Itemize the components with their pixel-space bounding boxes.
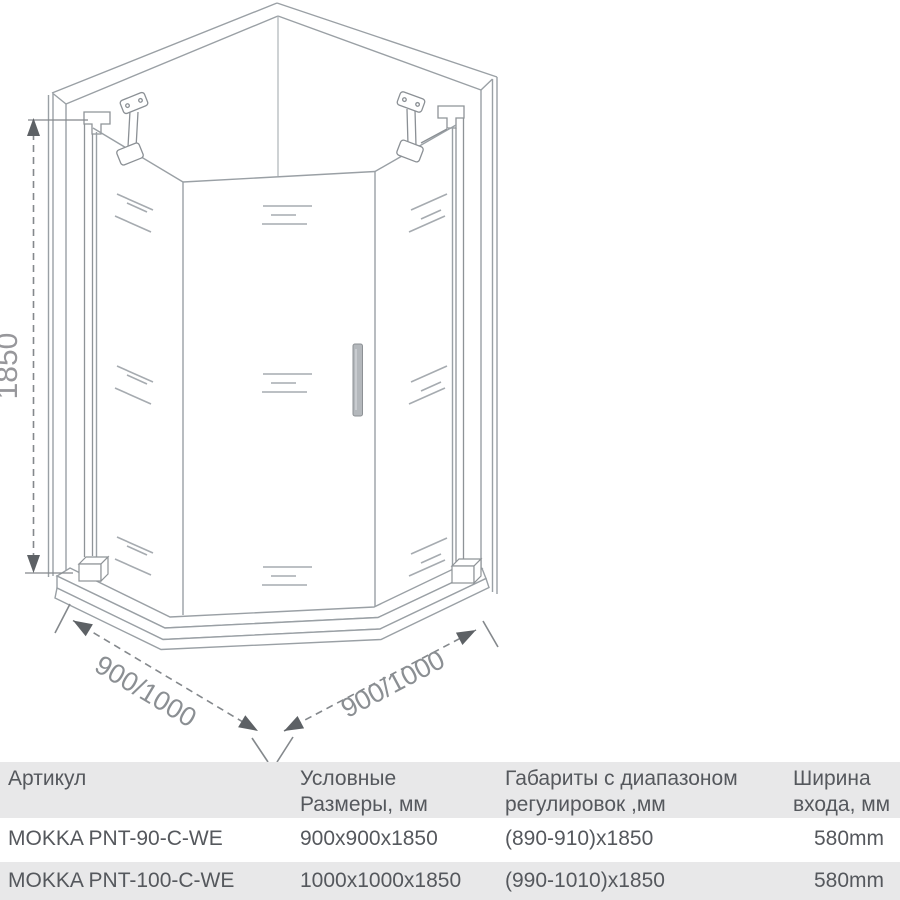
header-entry-width-line2: входа, мм: [793, 792, 890, 818]
glass-panels: [93, 125, 456, 615]
width-left-arrow-inner: [238, 715, 261, 737]
left-wall-top-outer-edge: [52, 3, 277, 93]
left-wall-end-cap: [53, 94, 66, 105]
height-dimension: 1850: [0, 118, 88, 573]
height-dimension-label: 1850: [0, 333, 24, 400]
left-profile-foot: [79, 557, 108, 581]
row2-nominal-size: 1000x1000x1850: [300, 862, 461, 900]
row1-adjust-range: (890-910)x1850: [505, 818, 653, 860]
width-left-tick-inner: [252, 738, 268, 762]
width-left-tick-outer: [55, 604, 70, 633]
header-nominal-size-line1: Условные: [300, 766, 428, 792]
back-walls: [49, 3, 498, 594]
left-hinge-clamp: [116, 142, 144, 166]
right-hinge-arm: [421, 129, 447, 143]
right-hinge: [396, 91, 447, 163]
right-panel-shine-middle: [409, 366, 447, 404]
row1-nominal-size: 900x900x1850: [300, 818, 438, 860]
height-arrow-down: [27, 555, 40, 573]
header-nominal-size-line2: Размеры, мм: [300, 792, 428, 818]
product-spec-sheet: 1850 900/1000 900/1000 Артикул: [0, 0, 900, 900]
right-panel-shine-bottom: [409, 538, 447, 576]
right-wall-end-cap: [481, 79, 493, 90]
header-entry-width-line1: Ширина: [793, 766, 890, 792]
left-panel-shine-top: [115, 194, 153, 232]
header-entry-width: Ширина входа, мм: [793, 766, 890, 818]
header-article-line1: Артикул: [8, 766, 86, 792]
left-wall-top-inner-edge: [66, 16, 278, 104]
height-arrow-up: [27, 118, 40, 136]
right-wall-top-inner-edge: [278, 16, 481, 90]
right-panel-shine-top: [409, 194, 447, 232]
row1-entry-width: 580mm: [814, 818, 884, 860]
row2-adjust-range: (990-1010)x1850: [505, 862, 665, 900]
left-hinge-bracket: [119, 92, 148, 115]
header-adjust-range-line2: регулировок ,мм: [505, 792, 738, 818]
shower-enclosure-diagram: 1850 900/1000 900/1000: [0, 0, 900, 762]
right-hinge-bracket: [396, 91, 425, 113]
header-article: Артикул: [8, 766, 86, 792]
header-adjust-range: Габариты с диапазоном регулировок ,мм: [505, 766, 738, 818]
width-right-tick-inner: [277, 737, 293, 762]
header-adjust-range-line1: Габариты с диапазоном: [505, 766, 738, 792]
door-shine-middle: [262, 374, 312, 392]
header-nominal-size: Условные Размеры, мм: [300, 766, 428, 818]
width-left-arrow-outer: [69, 614, 92, 636]
right-wall-top-outer-edge: [277, 3, 497, 77]
width-left-label: 900/1000: [90, 649, 202, 733]
width-right-label: 900/1000: [336, 644, 450, 723]
table-row: MOKKA PNT-90-C-WE 900x900x1850 (890-910)…: [0, 818, 900, 860]
left-panel-shine-bottom: [115, 537, 153, 575]
table-row: MOKKA PNT-100-C-WE 1000x1000x1850 (990-1…: [0, 862, 900, 900]
right-profile-foot: [452, 559, 481, 583]
right-wall-profile: [438, 106, 464, 563]
width-right-arrow-outer: [456, 624, 479, 645]
door-top-edge: [183, 172, 375, 183]
door-shine-bottom: [262, 567, 312, 585]
spec-table-header: Артикул Условные Размеры, мм Габариты с …: [0, 762, 900, 818]
width-right-tick-outer: [483, 621, 498, 647]
row2-article: MOKKA PNT-100-C-WE: [8, 862, 234, 900]
right-hinge-clamp: [396, 139, 424, 163]
row2-entry-width: 580mm: [814, 862, 884, 900]
right-hinge-link: [407, 109, 416, 146]
row1-article: MOKKA PNT-90-C-WE: [8, 818, 223, 860]
spec-table: Артикул Условные Размеры, мм Габариты с …: [0, 762, 900, 900]
left-panel-shine-middle: [115, 366, 153, 404]
width-right-arrow-inner: [281, 716, 304, 737]
door-handle: [353, 344, 363, 416]
right-profile-cap: [438, 106, 464, 128]
door-shine-top: [262, 206, 312, 224]
left-hinge: [116, 92, 149, 166]
glass-shine-marks: [115, 194, 447, 585]
shower-tray: [55, 561, 489, 650]
